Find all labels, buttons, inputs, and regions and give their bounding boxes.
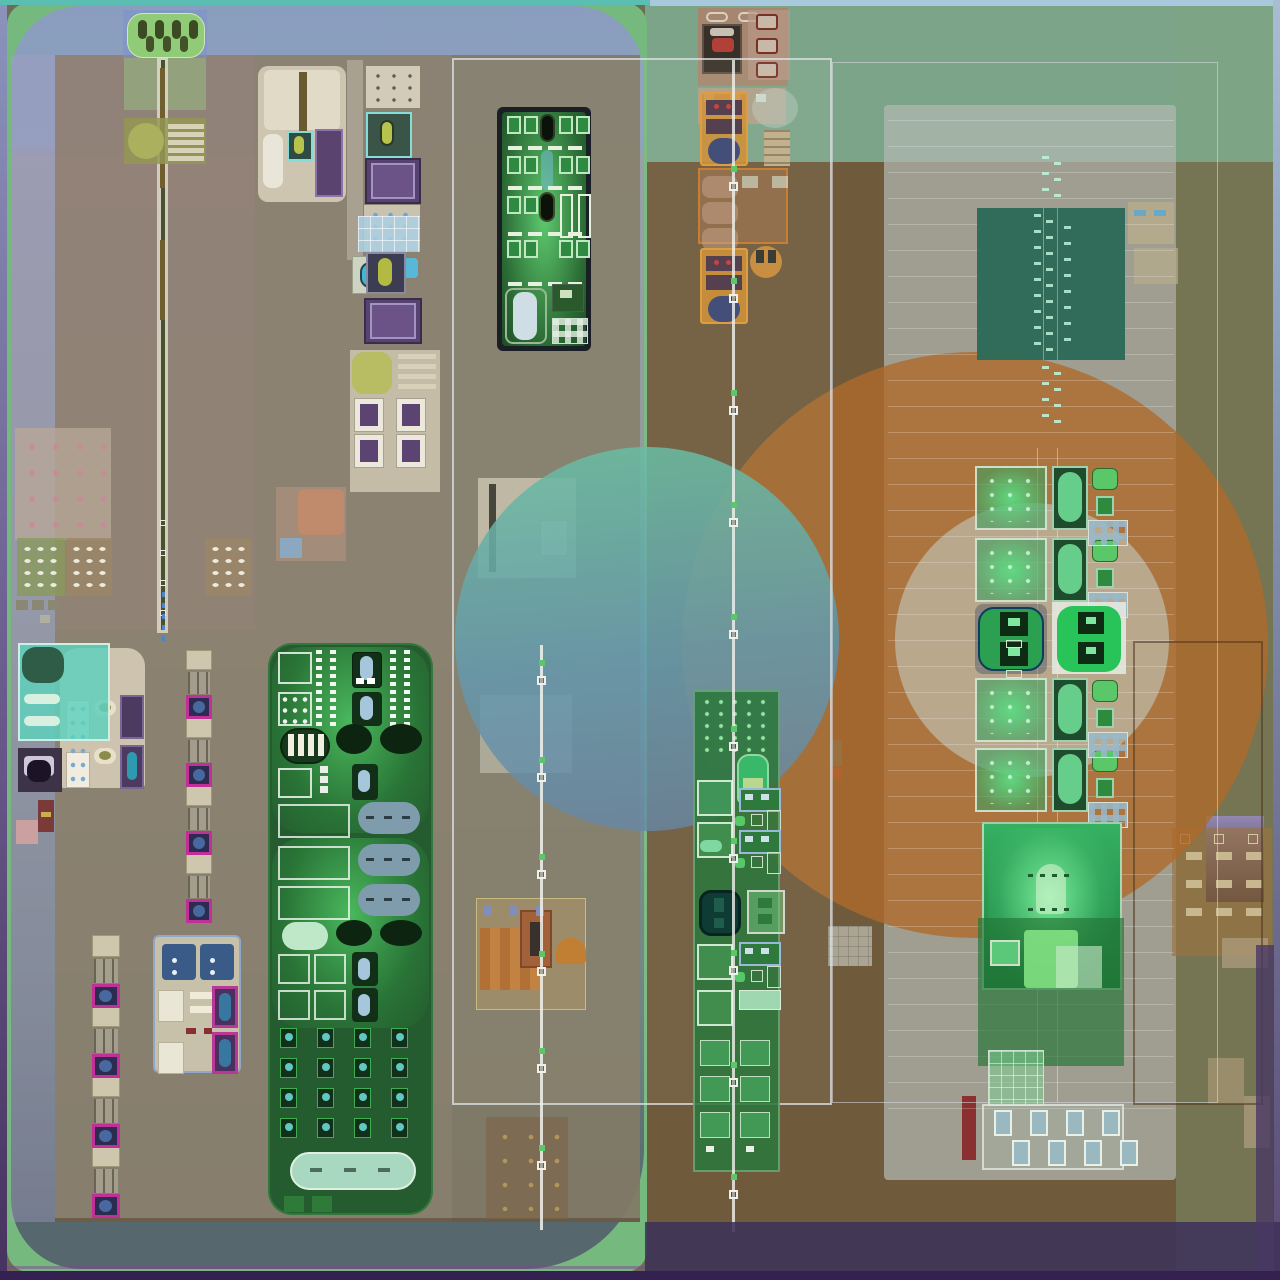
module-bigsq-upper-dots-1 — [983, 546, 1039, 594]
teal-dash-below-a-0 — [1042, 366, 1049, 369]
greenhall-pilldash-c-2 — [402, 898, 410, 901]
vending-dash-r1-1 — [528, 146, 542, 150]
greenhall-capsule-2 — [360, 696, 373, 720]
greenstrip-sq-2-blob — [700, 840, 722, 852]
greenstrip-chiprow-1b — [751, 814, 763, 826]
big-green-dots-2-0 — [1028, 908, 1033, 911]
vending-sq-r4-left-1[interactable] — [524, 240, 538, 258]
vending-oval-top — [540, 114, 555, 142]
teal-dash-above-a-2 — [1042, 188, 1049, 191]
greenhall-bigwf-b[interactable] — [278, 846, 350, 880]
greenhall-bottompill-dash-0 — [310, 1168, 322, 1172]
teal-dash-above-b-2 — [1054, 194, 1061, 197]
greenhall-pilldash-a-1 — [384, 816, 392, 819]
greenhall-capsule-1 — [360, 656, 373, 680]
chain-bottom-tanbox-1[interactable] — [92, 1005, 120, 1027]
greenhall-ball-r4-2 — [359, 1123, 367, 1131]
vending-sq-r1-left-0[interactable] — [507, 116, 521, 134]
road-left-seg2 — [160, 240, 165, 320]
frame-bottom-inner-line — [7, 1266, 645, 1269]
control-unit-b-capsule — [219, 1039, 231, 1067]
road-left-node-1[interactable] — [160, 550, 166, 556]
chain-bottom-divider-3 — [94, 1169, 118, 1193]
road-right-chip-5 — [731, 726, 737, 732]
greenstrip-sq-4[interactable] — [697, 990, 733, 1026]
cell-bed[interactable] — [299, 72, 307, 134]
vending-sq-r4-right-0[interactable] — [559, 240, 573, 258]
greenstrip-pad[interactable] — [747, 890, 785, 934]
teal-room-blob — [22, 647, 64, 683]
chain-left-tanbox-3[interactable] — [186, 854, 212, 874]
greenhall-pilldash-c-1 — [384, 898, 392, 901]
road-left-node-0[interactable] — [160, 520, 166, 526]
control-slider-knob — [196, 1026, 204, 1034]
greenhall-console-bar-0 — [288, 734, 294, 756]
locker-bottom-0[interactable] — [1012, 1140, 1030, 1166]
greenstrip-sq-3[interactable] — [697, 944, 733, 980]
teal-dash-col-b-1 — [1046, 236, 1053, 239]
greenhall-console-bar-3 — [318, 734, 324, 756]
dark-room-blob — [27, 760, 51, 782]
vending-capsule-mid — [541, 150, 553, 190]
vending-dash-r2-0 — [508, 186, 522, 190]
chain-bottom-blob-3 — [99, 1200, 112, 1212]
vending-sq-r1-right-0[interactable] — [559, 116, 573, 134]
big-green-dots-1-1 — [1040, 874, 1045, 877]
vending-dash-r1-0 — [508, 146, 522, 150]
module-bigsq-upper-dots-0 — [983, 474, 1039, 522]
module-blob-upper-0[interactable] — [1092, 468, 1118, 490]
generator-slat-3 — [168, 148, 204, 153]
greenhall-capsule-5 — [358, 994, 370, 1016]
greenhall-chipcol-2 — [320, 786, 328, 793]
rt-pipe-square-0[interactable] — [756, 14, 778, 30]
module-narrow-oval-upper-0 — [1058, 472, 1082, 522]
road-right-chip-4 — [731, 614, 737, 620]
cell-toilet[interactable] — [263, 134, 283, 188]
rt-stove-slot — [710, 28, 734, 36]
greenhall-dotstrip-4-0 — [390, 690, 396, 726]
big-green-dots-1-3 — [1064, 874, 1069, 877]
road-left-bluedot-0 — [162, 592, 165, 597]
wardrobe-b-bottle — [127, 752, 137, 780]
teal-dash-col-b-5 — [1046, 300, 1053, 303]
washer-right-drum-1 — [402, 440, 420, 462]
road-right-chip-8 — [731, 1062, 737, 1068]
greenstrip-panel-3-chip-0 — [745, 948, 753, 954]
locker-top-1[interactable] — [1030, 1110, 1048, 1136]
greenstrip-chiprow-2b — [751, 856, 763, 868]
road-right-node-7[interactable] — [729, 966, 738, 975]
chain-bottom-tanbox-3[interactable] — [92, 1145, 120, 1167]
big-green-dots-2-1 — [1040, 908, 1045, 911]
road-right-node-5[interactable] — [729, 742, 738, 751]
road-right-node-4[interactable] — [729, 630, 738, 639]
greenhall-bottompill-dash-1 — [344, 1168, 356, 1172]
greenhall-chip-1-1 — [367, 678, 375, 684]
cell-shower-capsule — [294, 136, 304, 154]
frame-right-purple-col — [1256, 945, 1274, 1280]
greenhall-bottom-sq-1 — [312, 1196, 332, 1212]
vending-dash-r4-0 — [508, 282, 522, 286]
washer-right-drum-0 — [402, 404, 420, 426]
control-table-a[interactable] — [158, 990, 184, 1022]
road-center-node-4[interactable] — [537, 1064, 546, 1073]
teal-dash-below-a-2 — [1042, 398, 1049, 401]
vending-dash-r2-1 — [528, 186, 542, 190]
greenhall-ball-r2-2 — [359, 1063, 367, 1071]
vending-dash-r2-2 — [548, 186, 562, 190]
oval-plate-2 — [99, 751, 111, 760]
teal-dash-below-b-0 — [1054, 372, 1061, 375]
road-right-node-3[interactable] — [729, 518, 738, 527]
greenstrip-panel-2-chip-0 — [745, 836, 753, 842]
greenhall-console-bar-2 — [308, 734, 314, 756]
bluetile-room[interactable] — [358, 216, 420, 252]
road-left-bluedot-4 — [162, 636, 165, 641]
teal-room-pill-1 — [24, 716, 60, 726]
pink-room-blob — [298, 489, 344, 535]
greenstrip-grid-r3-0[interactable] — [700, 1112, 730, 1138]
vending-sq-r1-left-1[interactable] — [524, 116, 538, 134]
teal-dash-col-c-2 — [1064, 258, 1071, 261]
road-right-node-6[interactable] — [729, 854, 738, 863]
greenstrip-panel-2-chip-1 — [761, 836, 769, 842]
greenstrip-panel-1[interactable] — [739, 788, 781, 812]
greenhall-chipcol-0 — [320, 766, 328, 773]
greenhall-dotstrip-1-1 — [330, 650, 336, 686]
road-right-node-2[interactable] — [729, 406, 738, 415]
module-blob-lower-0[interactable] — [1092, 680, 1118, 702]
module-mini-upper-1[interactable] — [1096, 568, 1114, 588]
rack-brown-pills — [70, 543, 108, 591]
chain-left-tanbox-1[interactable] — [186, 718, 212, 738]
teal-dash-col-c-7 — [1064, 338, 1071, 341]
chain-left-divider-0 — [188, 672, 210, 694]
road-right-node-0[interactable] — [729, 182, 738, 191]
teal-dash-above-b-1 — [1054, 178, 1061, 181]
generator-slat-4 — [168, 156, 204, 161]
locker-top-2[interactable] — [1066, 1110, 1084, 1136]
greenhall-mintpill[interactable] — [282, 922, 328, 950]
locker-bottom-1[interactable] — [1048, 1140, 1066, 1166]
module-mini-lower-0[interactable] — [1096, 708, 1114, 728]
teal-dash-col-c-3 — [1064, 274, 1071, 277]
control-table-b[interactable] — [158, 1042, 184, 1074]
chain-bottom-blob-1 — [99, 1060, 112, 1072]
big-green-dots-2-2 — [1052, 908, 1057, 911]
special-machine-a-outline-1 — [1006, 670, 1022, 678]
greenhall-bigwf-a[interactable] — [278, 804, 350, 838]
module-narrow-oval-lower-1 — [1058, 754, 1082, 804]
greenhall-chip-1-0 — [356, 678, 364, 684]
greenstrip-chiprow-1c — [767, 810, 781, 832]
road-center-line[interactable] — [540, 645, 543, 1230]
vending-dash-r1-3 — [568, 146, 582, 150]
chain-bottom-divider-0 — [94, 959, 118, 983]
greenstrip-grid-r2-0[interactable] — [700, 1076, 730, 1102]
vending-sq-r2-left-0[interactable] — [507, 156, 521, 174]
rt-pipe-square-1[interactable] — [756, 38, 778, 54]
greenhall-capsule-4 — [358, 958, 370, 980]
brown-room-dots — [492, 1125, 562, 1211]
pink-box[interactable] — [16, 820, 38, 844]
laundry-oval-machine[interactable] — [352, 352, 392, 394]
road-center-chip-0 — [539, 660, 545, 666]
chain-bottom-divider-1 — [94, 1029, 118, 1053]
vending-sq-r3-left-0[interactable] — [507, 196, 521, 214]
special-machine-a-chip-0 — [1008, 618, 1020, 626]
greenstrip-grid-r1-1[interactable] — [740, 1040, 770, 1066]
road-right-chip-9 — [731, 1174, 737, 1180]
teal-dash-col-c-6 — [1064, 322, 1071, 325]
greenhall-wf-dots[interactable] — [278, 692, 312, 726]
greenhall-wf-1[interactable] — [278, 652, 312, 684]
greenstrip-tealbox-slot2 — [714, 918, 724, 928]
greenhall-dotstrip-3-0 — [316, 690, 322, 726]
greenstrip-panel-2[interactable] — [739, 830, 781, 854]
road-center-node-5[interactable] — [537, 1161, 546, 1170]
road-center-chip-1 — [539, 757, 545, 763]
vending-sq-r4-left-0[interactable] — [507, 240, 521, 258]
greenhall-wfrow-2-0[interactable] — [278, 990, 310, 1020]
chain-left-tanbox-2[interactable] — [186, 786, 212, 806]
road-left-bluedot-1 — [162, 603, 165, 608]
heli-slot-b-2 — [180, 36, 188, 52]
greenhall-ball-r3-1 — [322, 1093, 330, 1101]
chain-left-divider-3 — [188, 876, 210, 898]
rack-brown-2-pills — [209, 543, 247, 591]
greenhall-wfrow-1-1[interactable] — [314, 954, 346, 984]
greenhall-chipcol-1 — [320, 776, 328, 783]
mini-cluster-sq-0 — [16, 600, 28, 610]
console-a[interactable] — [162, 944, 196, 980]
greenhall-wfrow-2-1[interactable] — [314, 990, 346, 1020]
teal-dash-col-b-0 — [1046, 220, 1053, 223]
chain-bottom-blob-0 — [99, 990, 112, 1002]
vending-sq-r4-right-1[interactable] — [576, 240, 590, 258]
locker-bottom-2[interactable] — [1084, 1140, 1102, 1166]
road-left-bluedot-2 — [162, 614, 165, 619]
greenhall-oval-d — [380, 920, 422, 946]
road-center-node-2[interactable] — [537, 870, 546, 879]
frame-right-strip — [1273, 0, 1280, 1280]
road-right-chip-0 — [731, 166, 737, 172]
greenstrip-grid-r3-1[interactable] — [740, 1112, 770, 1138]
teal-dash-above-b-0 — [1054, 162, 1061, 165]
teal-dash-col-a-3 — [1034, 262, 1041, 265]
greenhall-bottompill-dash-2 — [378, 1168, 390, 1172]
purple-room-2-inner — [370, 303, 416, 339]
chain-bottom-tanbox-0[interactable] — [92, 935, 120, 957]
rack-green-pills — [21, 543, 61, 591]
chain-bottom-divider-2 — [94, 1099, 118, 1123]
greenhall-pilldash-b-0 — [366, 858, 374, 861]
frame-bottom-strip — [0, 1271, 1280, 1280]
shower-3-capsule — [378, 258, 392, 286]
washer-left-drum-1 — [360, 440, 378, 462]
greenstrip-grid-r2-1[interactable] — [740, 1076, 770, 1102]
greenhall-oval-b — [380, 724, 422, 754]
frame-left-strip — [0, 5, 7, 1280]
greenhall-ball-r1-2 — [359, 1033, 367, 1041]
greenhall-pilldash-b-2 — [402, 858, 410, 861]
teal-dash-below-b-2 — [1054, 404, 1061, 407]
vending-capsule-machine[interactable] — [513, 292, 537, 340]
greenhall-ball-r4-1 — [322, 1123, 330, 1131]
vending-sq-r2-left-1[interactable] — [524, 156, 538, 174]
module-checker-upper-0 — [1088, 520, 1128, 546]
mini-cluster-sq2 — [40, 615, 50, 623]
map-stage — [0, 0, 1280, 1280]
big-green-dots-2-3 — [1064, 908, 1069, 911]
road-center-node-0[interactable] — [537, 676, 546, 685]
greenhall-pilldash-b-1 — [384, 858, 392, 861]
greenhall-wf-2[interactable] — [278, 768, 312, 798]
road-right-node-9[interactable] — [729, 1190, 738, 1199]
road-left-node-2[interactable] — [160, 580, 166, 586]
cell-wardrobe[interactable] — [315, 129, 343, 197]
generator-oval[interactable] — [128, 123, 164, 159]
teal-dash-col-b-6 — [1046, 316, 1053, 319]
greenhall-dotstrip-3-1 — [330, 690, 336, 726]
special-machine-b-chip-0 — [1086, 617, 1096, 624]
chain-left-divider-1 — [188, 740, 210, 762]
road-right-chip-2 — [731, 390, 737, 396]
below-mini-sq[interactable] — [990, 940, 1020, 966]
heli-slot-0 — [138, 20, 147, 39]
special-machine-a-outline-0 — [1006, 640, 1022, 648]
vending-dash-r3-0 — [508, 232, 522, 236]
module-mini-lower-1[interactable] — [1096, 778, 1114, 798]
road-right-chip-1 — [731, 278, 737, 284]
teal-dash-col-a-7 — [1034, 326, 1041, 329]
mini-cluster-sq-2 — [48, 600, 60, 610]
hooded-figure — [1036, 864, 1066, 914]
greenhall-ball-r4-0 — [285, 1123, 293, 1131]
console-dot-0 — [172, 958, 177, 963]
rt-stove-glow — [712, 38, 734, 52]
big-green-dots-1-0 — [1028, 874, 1033, 877]
special-machine-a-chip-1 — [1008, 648, 1020, 656]
greenhall-ball-r3-0 — [285, 1093, 293, 1101]
chain-bottom-tanbox-2[interactable] — [92, 1075, 120, 1097]
vending-pad-chip — [560, 290, 572, 298]
road-right-line[interactable] — [732, 60, 735, 1232]
mini-cluster-sq-1 — [32, 600, 44, 610]
teal-square-vline-b — [1057, 208, 1058, 360]
teal-dash-col-a-6 — [1034, 310, 1041, 313]
teal-dash-above-a-0 — [1042, 156, 1049, 159]
greenhall-pilldash-c-0 — [366, 898, 374, 901]
teal-dash-col-b-7 — [1046, 332, 1053, 335]
road-center-chip-5 — [539, 1145, 545, 1151]
dorm-grid-dots — [20, 434, 106, 534]
vending-sq-r2-right-0[interactable] — [559, 156, 573, 174]
greenstrip-panel-3[interactable] — [739, 942, 781, 966]
special-machine-b-chip-1 — [1086, 647, 1096, 654]
greenhall-bigwf-c[interactable] — [278, 886, 350, 920]
greenhall-wfrow-1-0[interactable] — [278, 954, 310, 984]
chain-bottom-blob-2 — [99, 1130, 112, 1142]
teal-dash-below-a-1 — [1042, 382, 1049, 385]
road-right-node-8[interactable] — [729, 1078, 738, 1087]
road-center-node-1[interactable] — [537, 773, 546, 782]
vending-sq-r2-right-1[interactable] — [576, 156, 590, 174]
vending-dark-pad — [552, 284, 584, 312]
shower-2-capsule — [380, 120, 394, 146]
teal-dash-col-c-4 — [1064, 290, 1071, 293]
greenhall-ball-r2-1 — [322, 1063, 330, 1071]
frame-bottom-band — [645, 1222, 1280, 1272]
greenstrip-mintbar — [739, 990, 781, 1010]
teal-room-pill-0 — [24, 694, 60, 704]
greenhall-ball-r2-0 — [285, 1063, 293, 1071]
teal-dash-col-b-4 — [1046, 284, 1053, 287]
chain-left-blob-3 — [193, 905, 205, 917]
locker-top-3[interactable] — [1102, 1110, 1120, 1136]
greenstrip-panel-3-chip-1 — [761, 948, 769, 954]
greenstrip-pad-chip-0 — [758, 898, 772, 908]
wardrobe-a[interactable] — [120, 695, 144, 739]
console-dot-1 — [210, 958, 215, 963]
greenhall-ball-r1-0 — [285, 1033, 293, 1041]
generator-slat-2 — [168, 140, 204, 145]
teal-dash-col-c-0 — [1064, 226, 1071, 229]
vending-dash-r3-3 — [568, 232, 582, 236]
teal-dash-col-a-5 — [1034, 294, 1041, 297]
road-center-node-3[interactable] — [537, 967, 546, 976]
vending-dash-r1-2 — [548, 146, 562, 150]
greenstrip-chiprow-3c — [767, 966, 781, 988]
locker-red-handle — [41, 812, 51, 817]
road-center-chip-4 — [539, 1048, 545, 1054]
laundry-slats — [398, 354, 436, 394]
pink-room-window — [280, 538, 302, 558]
greenstrip-grid-r1-0[interactable] — [700, 1040, 730, 1066]
teal-dash-col-a-0 — [1034, 214, 1041, 217]
below-overlay-sq — [1056, 946, 1102, 988]
teal-dash-col-a-4 — [1034, 278, 1041, 281]
chain-left-tanbox-0[interactable] — [186, 650, 212, 670]
frame-top-right-line — [650, 0, 1280, 6]
road-left-bluedot-3 — [162, 625, 165, 630]
locker-bottom-3[interactable] — [1120, 1140, 1138, 1166]
teal-dash-col-b-2 — [1046, 252, 1053, 255]
greenhall-dotstrip-2-0 — [390, 650, 396, 686]
purple-room-1-inner — [371, 163, 415, 199]
console-b[interactable] — [200, 944, 234, 980]
teal-dash-below-b-3 — [1054, 420, 1061, 423]
greenhall-ball-r1-1 — [322, 1033, 330, 1041]
road-right-node-1[interactable] — [729, 294, 738, 303]
locker-top-0[interactable] — [994, 1110, 1012, 1136]
chain-left-blob-0 — [193, 701, 205, 713]
vending-sq-r1-right-1[interactable] — [576, 116, 590, 134]
greenhall-bottom-sq-0 — [284, 1196, 304, 1212]
greenstrip-tealbox-slot — [714, 898, 724, 912]
greenhall-ball-r4-3 — [396, 1123, 404, 1131]
road-right-chip-3 — [731, 502, 737, 508]
teal-dash-col-a-1 — [1034, 230, 1041, 233]
greenstrip-sq-1[interactable] — [697, 780, 733, 816]
teal-dash-col-a-2 — [1034, 246, 1041, 249]
teal-dash-col-c-1 — [1064, 242, 1071, 245]
module-narrow-oval-lower-0 — [1058, 684, 1082, 734]
vending-sq-r3-left-1[interactable] — [524, 196, 538, 214]
module-mini-upper-0[interactable] — [1096, 496, 1114, 516]
grid-panel-small[interactable] — [988, 1050, 1044, 1106]
